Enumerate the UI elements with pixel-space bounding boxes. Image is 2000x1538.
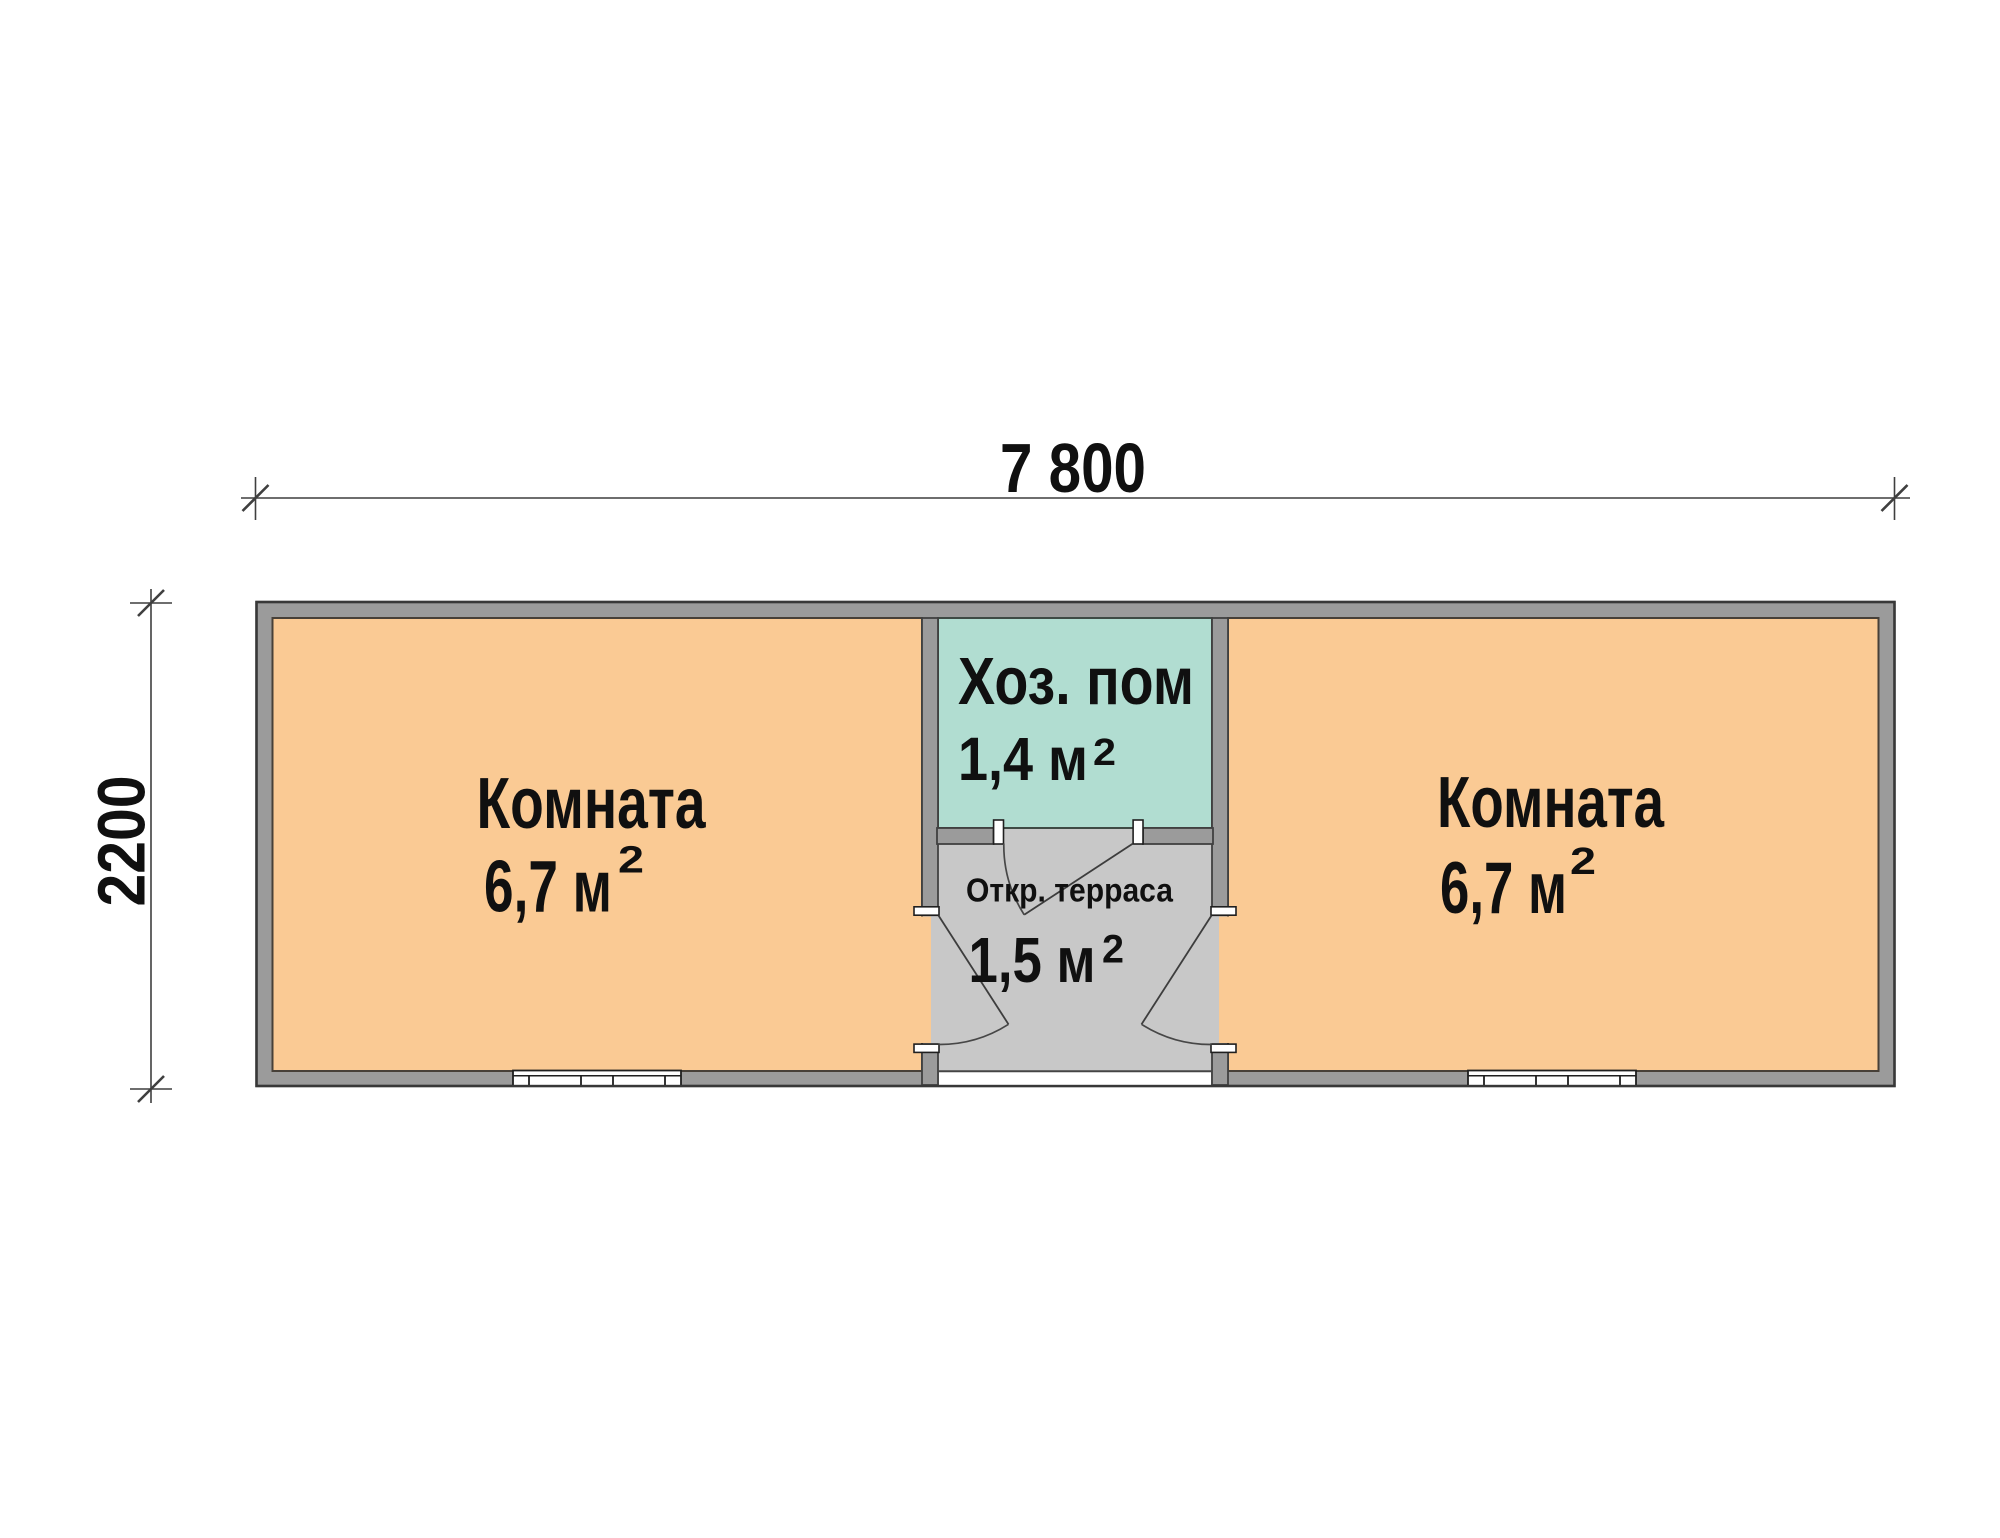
svg-text:6,7 м: 6,7 м — [484, 847, 612, 928]
svg-text:1,5 м: 1,5 м — [969, 924, 1096, 996]
svg-text:6,7 м: 6,7 м — [1440, 848, 1567, 929]
svg-text:Комната: Комната — [477, 764, 707, 844]
svg-text:2200: 2200 — [85, 776, 160, 907]
svg-text:Комната: Комната — [1437, 763, 1665, 843]
svg-text:Откр. терраса: Откр. терраса — [966, 872, 1174, 909]
svg-text:2: 2 — [1570, 841, 1596, 883]
svg-text:Хоз. пом: Хоз. пом — [958, 644, 1194, 719]
svg-text:2: 2 — [618, 840, 644, 882]
svg-text:1,4 м: 1,4 м — [958, 725, 1088, 793]
svg-text:2: 2 — [1102, 928, 1124, 972]
svg-text:7 800: 7 800 — [1000, 429, 1146, 507]
svg-text:2: 2 — [1093, 732, 1116, 774]
